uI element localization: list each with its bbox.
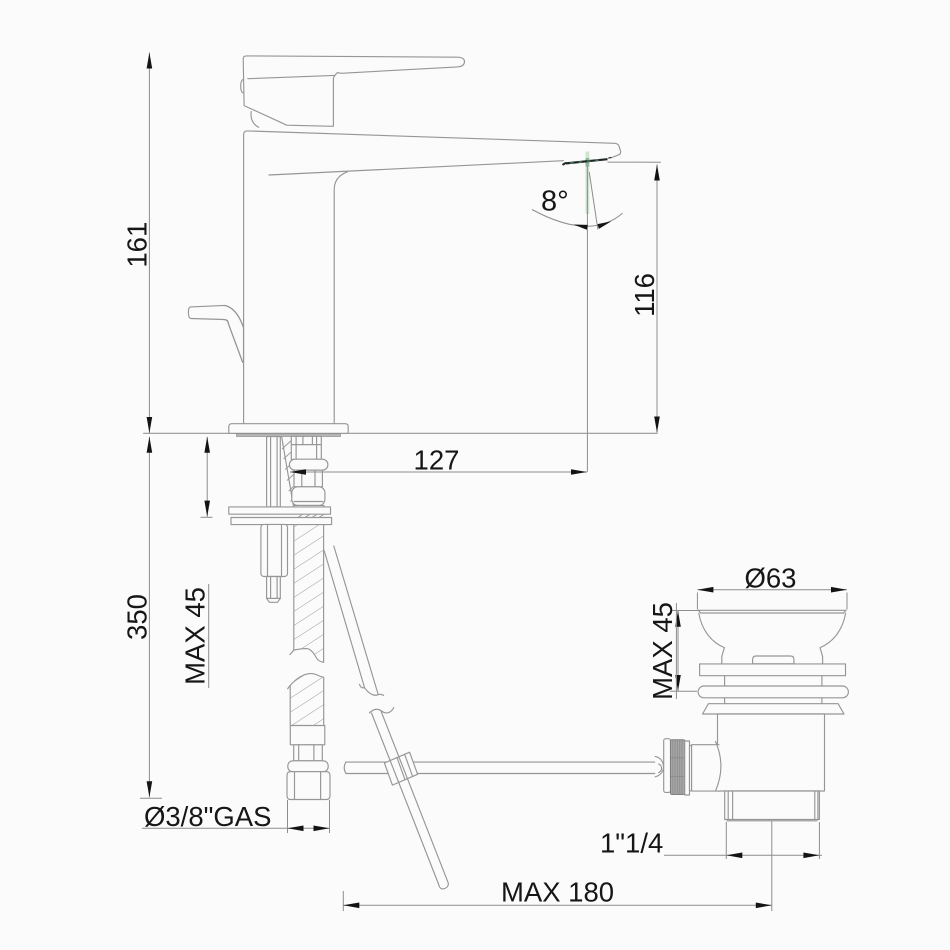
- svg-text:350: 350: [121, 594, 152, 640]
- svg-text:MAX 45: MAX 45: [180, 587, 211, 685]
- svg-text:116: 116: [629, 273, 660, 317]
- svg-text:8°: 8°: [541, 186, 569, 218]
- svg-text:127: 127: [414, 445, 460, 476]
- svg-text:MAX 45: MAX 45: [647, 602, 678, 700]
- svg-text:161: 161: [121, 222, 152, 268]
- svg-text:Ø63: Ø63: [745, 563, 797, 594]
- svg-text:1"1/4: 1"1/4: [600, 828, 663, 859]
- svg-text:MAX 180: MAX 180: [501, 877, 614, 908]
- svg-text:Ø3/8"GAS: Ø3/8"GAS: [144, 801, 271, 832]
